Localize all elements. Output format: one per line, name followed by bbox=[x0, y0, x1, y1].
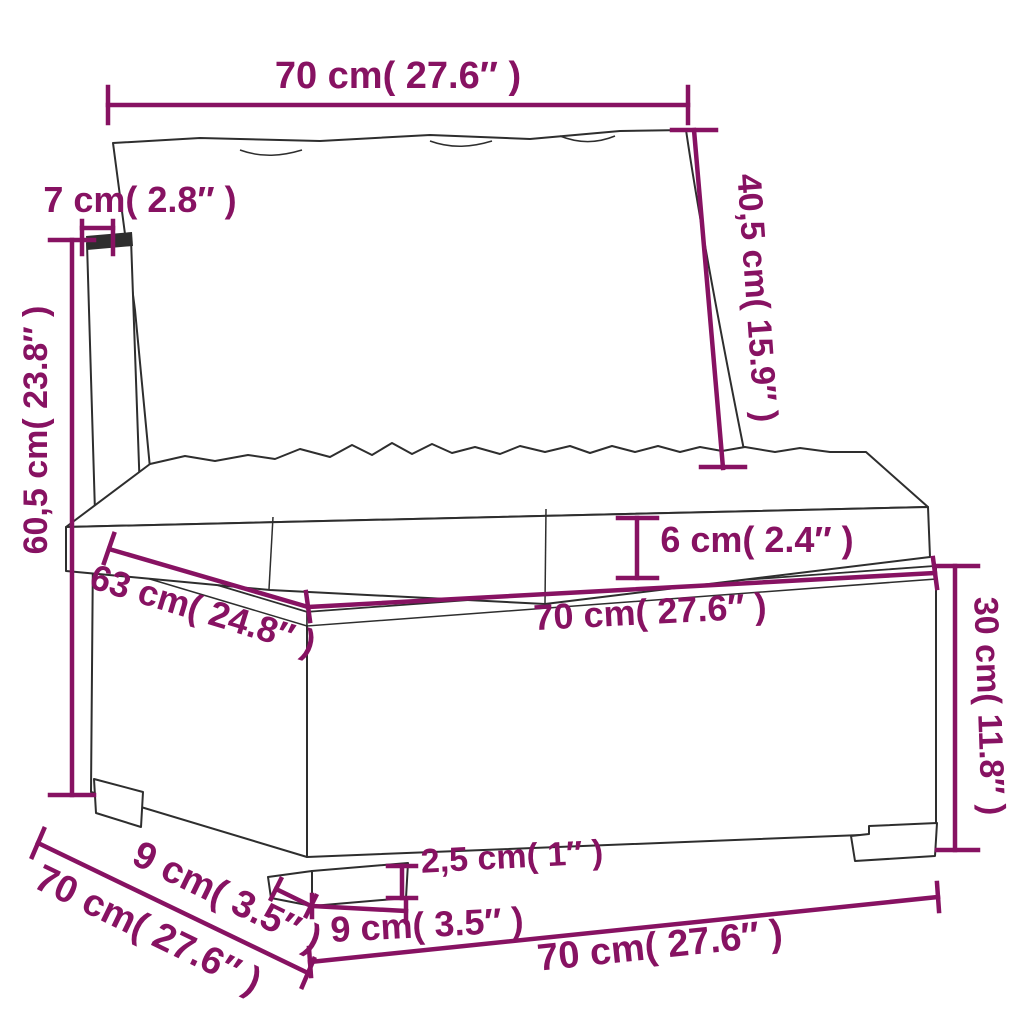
dim-label-base-height: 30 cm( 11.8″ ) bbox=[968, 596, 1010, 816]
dim-label-backrest-thickness: 7 cm( 2.8″ ) bbox=[43, 182, 236, 218]
dim-label-leg-height: 2,5 cm( 1″ ) bbox=[420, 835, 604, 879]
dim-label-seat-cushion-thickness: 6 cm( 2.4″ ) bbox=[660, 522, 853, 558]
dimension-diagram: 70 cm( 27.6″ ) 7 cm( 2.8″ ) 40,5 cm( 15.… bbox=[0, 0, 1024, 1024]
dim-label-front-leg-width: 9 cm( 3.5″ ) bbox=[330, 902, 525, 948]
dim-label-top-width: 70 cm( 27.6″ ) bbox=[275, 57, 521, 95]
dim-label-total-height: 60,5 cm( 23.8″ ) bbox=[19, 306, 53, 555]
